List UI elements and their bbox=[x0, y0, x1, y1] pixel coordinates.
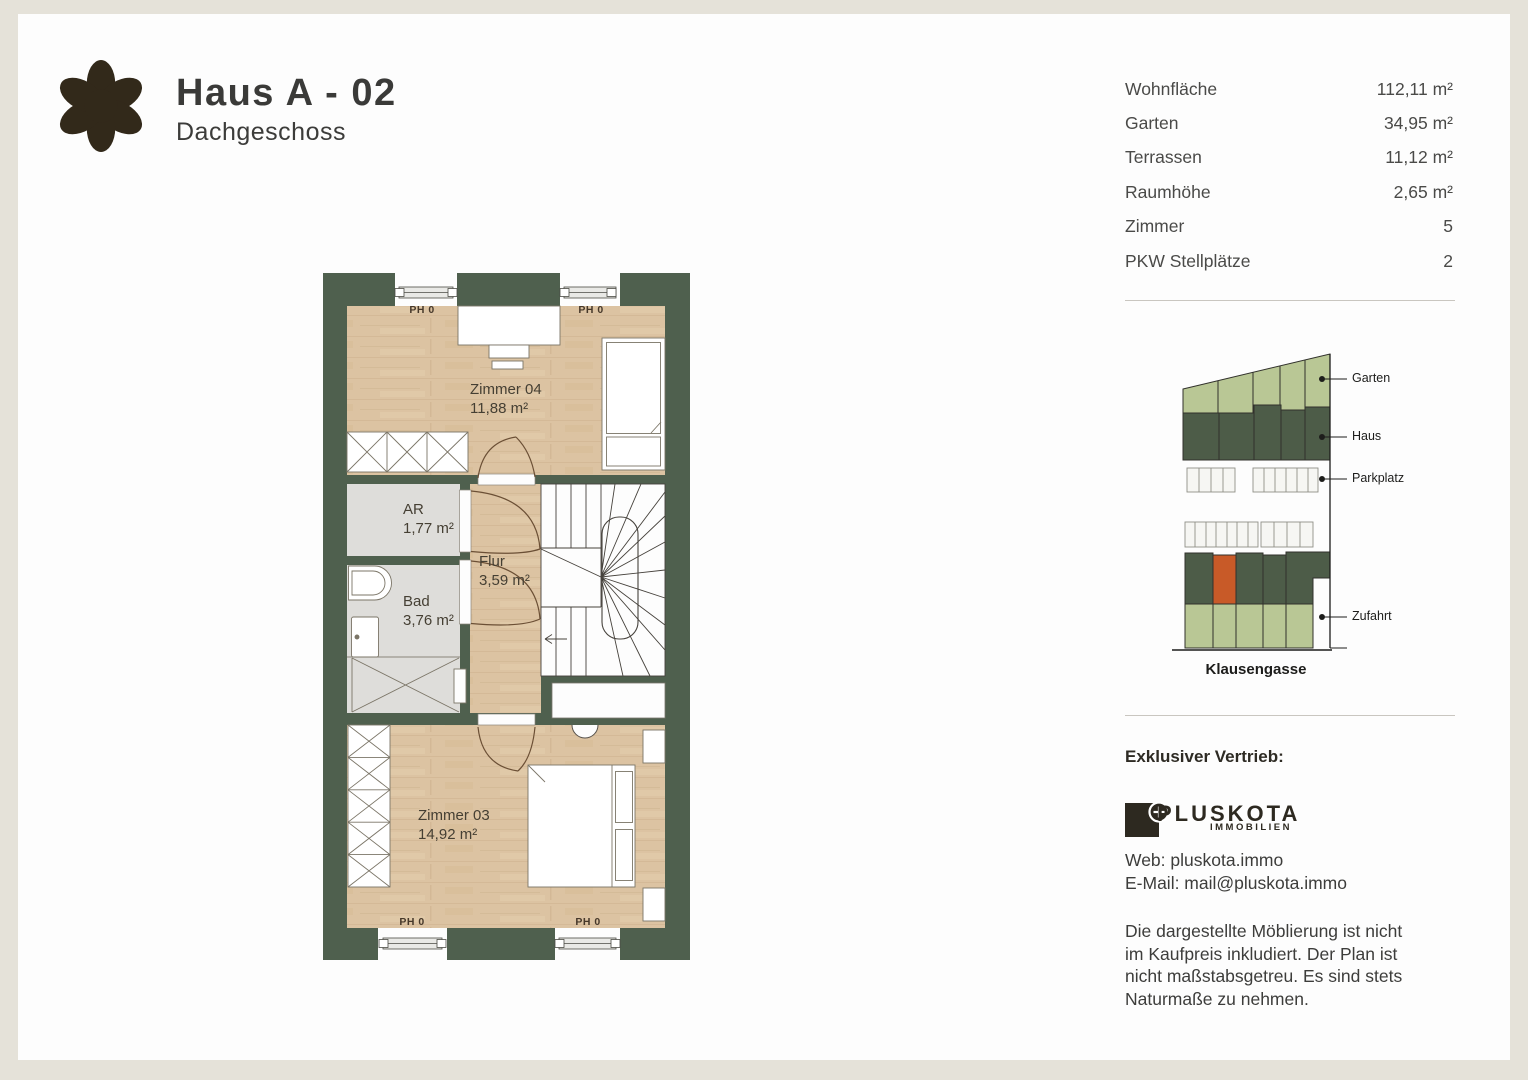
detail-label: Garten bbox=[1125, 113, 1179, 134]
detail-label: Zimmer bbox=[1125, 216, 1184, 237]
page-subtitle: Dachgeschoss bbox=[176, 118, 346, 147]
chair bbox=[489, 345, 529, 358]
detail-value: 112,11 m² bbox=[1377, 79, 1453, 100]
parking-row-1 bbox=[1187, 468, 1318, 492]
window-ph-label: PH 0 bbox=[575, 916, 600, 928]
legend-parkplatz: Parkplatz bbox=[1352, 471, 1404, 485]
vendor-heading: Exklusiver Vertrieb: bbox=[1125, 747, 1284, 767]
table-row: PKW Stellplätze 2 bbox=[1125, 244, 1453, 278]
brand-subtitle: IMMOBILIEN bbox=[1210, 822, 1292, 833]
pillow bbox=[616, 772, 633, 823]
room-label-ar: AR 1,77 m² bbox=[403, 500, 454, 538]
window-glyph bbox=[379, 938, 446, 949]
garden-row-top bbox=[1183, 354, 1330, 413]
detail-label: Raumhöhe bbox=[1125, 182, 1211, 203]
wardrobe bbox=[348, 725, 390, 887]
table-row: Wohnfläche 112,11 m² bbox=[1125, 72, 1453, 106]
room-label-flur: Flur 3,59 m² bbox=[479, 552, 530, 590]
legend-garten: Garten bbox=[1352, 371, 1390, 385]
highlighted-unit bbox=[1213, 555, 1236, 604]
contact-block: Web: pluskota.immo E-Mail: mail@pluskota… bbox=[1125, 849, 1347, 894]
vendor-web: Web: pluskota.immo bbox=[1125, 849, 1347, 872]
pillow bbox=[616, 830, 633, 881]
page-title: Haus A - 02 bbox=[176, 72, 397, 115]
street-name: Klausengasse bbox=[1176, 661, 1336, 678]
room-label-bad: Bad 3,76 m² bbox=[403, 592, 454, 630]
detail-value: 2 bbox=[1443, 251, 1453, 272]
house-row-bottom bbox=[1185, 552, 1330, 604]
detail-value: 11,12 m² bbox=[1385, 147, 1453, 168]
garden-row-bottom bbox=[1185, 604, 1313, 648]
vendor-email: E-Mail: mail@pluskota.immo bbox=[1125, 872, 1347, 895]
detail-label: Terrassen bbox=[1125, 147, 1202, 168]
house-row-top bbox=[1183, 405, 1330, 460]
table-row: Zimmer 5 bbox=[1125, 210, 1453, 244]
window-glyph bbox=[555, 938, 620, 949]
window-ph-label: PH 0 bbox=[578, 304, 603, 316]
disclaimer: Die dargestellte Möblierung ist nicht im… bbox=[1125, 920, 1402, 1010]
detail-value: 2,65 m² bbox=[1394, 182, 1453, 203]
divider-bottom bbox=[1125, 715, 1455, 716]
window-ph-label: PH 0 bbox=[399, 916, 424, 928]
staircase bbox=[541, 484, 665, 676]
page: Haus A - 02 Dachgeschoss Wohnfläche 112,… bbox=[0, 0, 1528, 1080]
window-glyph bbox=[395, 287, 457, 298]
divider-top bbox=[1125, 300, 1455, 301]
room-label-zimmer-03: Zimmer 03 14,92 m² bbox=[418, 806, 490, 844]
detail-value: 34,95 m² bbox=[1384, 113, 1453, 134]
floor-plan-svg bbox=[300, 240, 720, 1000]
nightstand bbox=[643, 730, 665, 763]
stair-niche bbox=[552, 683, 665, 718]
detail-label: Wohnfläche bbox=[1125, 79, 1217, 100]
table-row: Terrassen 11,12 m² bbox=[1125, 141, 1453, 175]
site-plan-svg bbox=[1165, 345, 1355, 660]
room-label-zimmer-04: Zimmer 04 11,88 m² bbox=[470, 380, 542, 418]
parking-row-2 bbox=[1185, 522, 1313, 547]
legend-haus: Haus bbox=[1352, 429, 1381, 443]
window-glyph bbox=[560, 287, 616, 298]
detail-value: 5 bbox=[1443, 216, 1453, 237]
flower-logo-icon bbox=[55, 60, 147, 152]
desk bbox=[458, 306, 560, 345]
table-row: Raumhöhe 2,65 m² bbox=[1125, 175, 1453, 209]
nightstand bbox=[643, 888, 665, 921]
wardrobe bbox=[347, 432, 468, 472]
legend-zufahrt: Zufahrt bbox=[1352, 609, 1392, 623]
table-row: Garten 34,95 m² bbox=[1125, 106, 1453, 140]
detail-label: PKW Stellplätze bbox=[1125, 251, 1250, 272]
details-table: Wohnfläche 112,11 m² Garten 34,95 m² Ter… bbox=[1125, 72, 1453, 278]
window-ph-label: PH 0 bbox=[409, 304, 434, 316]
